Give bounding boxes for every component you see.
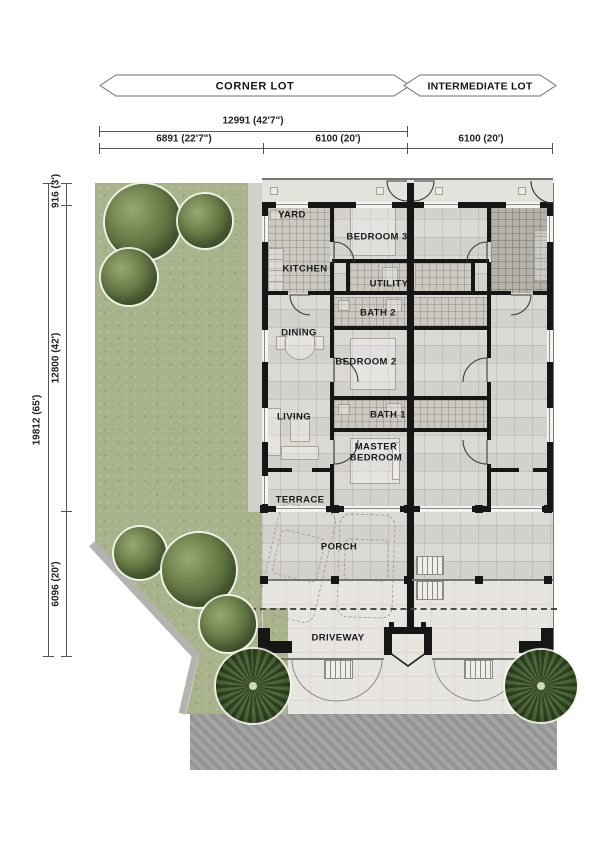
sofa	[281, 446, 319, 460]
dim-seg-front-depth: 6096 (20')	[51, 561, 62, 606]
dim-tick	[61, 205, 72, 206]
room-label-bath2: BATH 2	[360, 307, 396, 318]
wall-internal	[533, 468, 553, 472]
window	[506, 202, 540, 208]
room-label-bedroom2: BEDROOM 2	[335, 356, 396, 367]
intermediate-lot-label: INTERMEDIATE LOT	[427, 81, 532, 93]
dim-seg-intermediate-unit: 6100 (20')	[458, 134, 503, 145]
window	[344, 506, 400, 512]
column	[475, 505, 483, 513]
corner-lot-label: CORNER LOT	[216, 81, 295, 93]
dim-seg-corner-unit: 6100 (20')	[315, 134, 360, 145]
wall-internal	[330, 262, 334, 335]
column	[404, 576, 412, 584]
column	[260, 505, 268, 513]
dim-tick	[407, 143, 408, 154]
rear-boundary-wall	[262, 178, 553, 180]
dim-line-segments-depth	[66, 183, 67, 657]
window	[262, 330, 268, 362]
column	[544, 576, 552, 584]
wall-internal	[487, 382, 491, 440]
tree	[200, 596, 256, 652]
wall-internal	[413, 326, 489, 330]
lot-front-dashed-line	[250, 608, 557, 610]
wall-internal	[332, 291, 408, 295]
room-label-porch: PORCH	[321, 541, 357, 552]
bath2-fixture	[338, 300, 350, 311]
center-gate-leg	[424, 627, 432, 655]
dim-tick	[407, 126, 408, 137]
fence-post	[270, 187, 278, 195]
room-label-yard: YARD	[278, 209, 306, 220]
dim-seg-setback: 916 (3')	[51, 174, 62, 208]
wall-internal	[413, 291, 489, 295]
column	[331, 576, 339, 584]
dim-tick	[99, 143, 100, 154]
center-gate-leg	[384, 627, 392, 655]
gate-panel	[324, 660, 353, 679]
dim-total-depth: 19812 (65')	[32, 395, 43, 446]
wall-internal	[330, 205, 334, 242]
window	[420, 506, 472, 512]
lot-boundary-right	[553, 183, 554, 714]
mirror-bath2-tiles	[413, 297, 487, 328]
dim-total-width: 12991 (42'7")	[222, 116, 283, 127]
mirror-utility-tiles	[415, 263, 471, 293]
window	[262, 476, 268, 504]
column	[544, 505, 552, 513]
meter-panel	[416, 556, 444, 575]
window	[262, 408, 268, 442]
dim-line-segments-width	[99, 148, 553, 149]
wall-internal	[332, 428, 408, 432]
wall-internal	[487, 205, 491, 242]
wall-internal	[413, 428, 489, 432]
room-label-utility: UTILITY	[370, 278, 409, 289]
palm-tree	[216, 649, 290, 723]
wall-internal	[487, 335, 491, 358]
wall-internal	[489, 291, 511, 295]
room-label-master-bedroom: MASTER BEDROOM	[350, 442, 402, 465]
wall-internal	[332, 259, 408, 263]
dim-tick	[552, 143, 553, 154]
side-apron	[248, 183, 262, 512]
room-label-dining: DINING	[281, 327, 317, 338]
gate-knob	[421, 622, 426, 627]
wall-party	[407, 183, 414, 629]
wall-internal	[332, 396, 408, 400]
car-outline	[336, 513, 396, 619]
wall-internal	[487, 262, 491, 335]
column	[475, 576, 483, 584]
dim-tick	[263, 143, 264, 154]
mirror-bath1-tiles	[413, 400, 487, 430]
window	[490, 506, 542, 512]
window	[262, 216, 268, 242]
column	[260, 576, 268, 584]
room-label-bedroom3: BEDROOM 3	[346, 231, 407, 242]
dim-tick	[61, 511, 72, 512]
room-label-kitchen: KITCHEN	[282, 263, 327, 274]
road	[190, 714, 557, 770]
dim-tick	[61, 656, 72, 657]
wall-internal	[471, 263, 475, 291]
gate-panel	[464, 660, 493, 679]
window	[356, 202, 392, 208]
floor-plan-canvas: CORNER LOT INTERMEDIATE LOT 12991 (42'7"…	[0, 0, 600, 848]
dim-tick	[99, 126, 100, 137]
window	[547, 408, 553, 442]
dim-tick	[43, 656, 54, 657]
dim-line-total-width	[99, 131, 408, 132]
room-label-terrace: TERRACE	[276, 494, 325, 505]
wall-internal	[332, 326, 408, 330]
dim-seg-garden: 6891 (22'7")	[156, 134, 212, 145]
column	[404, 505, 412, 513]
meter-panel	[416, 581, 444, 600]
car-cabin	[271, 529, 326, 584]
tree	[105, 184, 181, 260]
fence-post	[435, 187, 443, 195]
wall-internal	[489, 468, 519, 472]
window	[424, 202, 458, 208]
palm-tree	[505, 650, 577, 722]
fence-post	[376, 187, 384, 195]
gate-pillar-left	[268, 641, 292, 653]
window	[547, 330, 553, 362]
wall-internal	[262, 468, 292, 472]
tree	[101, 249, 157, 305]
wall-internal	[312, 468, 332, 472]
tree	[178, 194, 232, 248]
wall-internal	[330, 335, 334, 358]
wall-internal	[413, 259, 489, 263]
room-label-bath1: BATH 1	[370, 409, 406, 420]
wall-internal	[330, 382, 334, 440]
wall-internal	[346, 263, 350, 291]
wall-internal	[262, 291, 288, 295]
intermediate-lot-banner: INTERMEDIATE LOT	[403, 74, 557, 97]
fence-post	[518, 187, 526, 195]
wall-internal	[533, 291, 553, 295]
dim-line-total-depth	[48, 183, 49, 657]
window	[276, 202, 308, 208]
dim-seg-house-depth: 12800 (42')	[51, 333, 62, 384]
bath1-fixture	[338, 404, 350, 415]
tree	[114, 527, 166, 579]
window	[547, 216, 553, 242]
corner-lot-banner: CORNER LOT	[99, 74, 411, 97]
wall-internal	[308, 291, 332, 295]
window	[276, 506, 326, 512]
gate-knob	[389, 622, 394, 627]
dim-tick	[61, 183, 72, 184]
room-label-driveway: DRIVEWAY	[311, 632, 364, 643]
room-label-living: LIVING	[277, 411, 311, 422]
wall-internal	[413, 396, 489, 400]
